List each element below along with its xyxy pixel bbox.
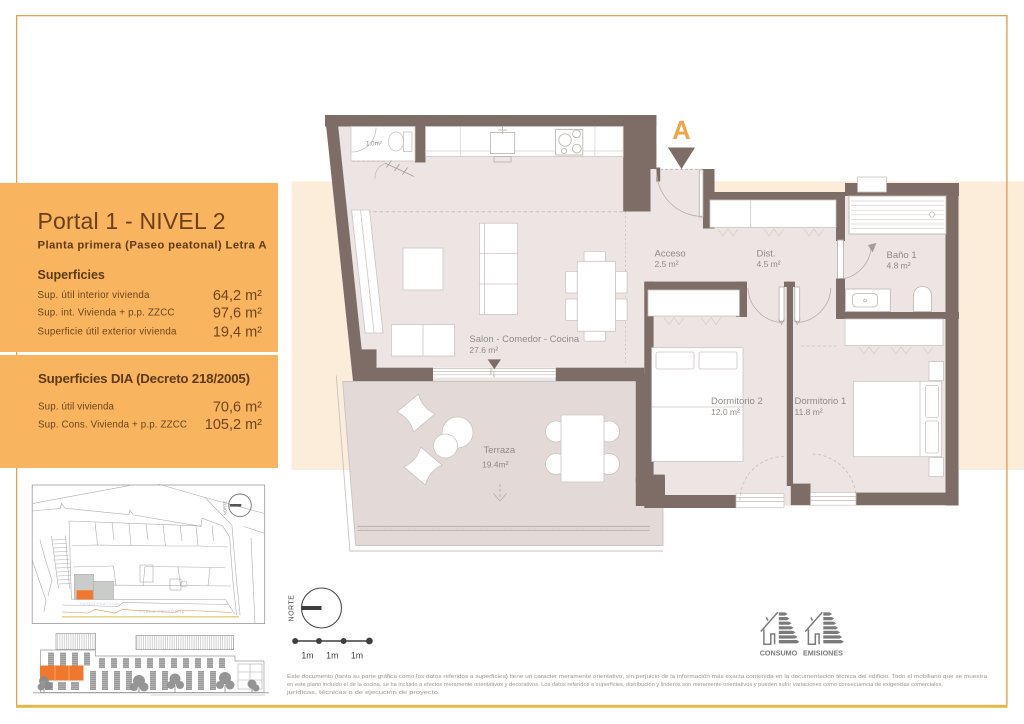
- svg-text:Acceso: Acceso: [655, 249, 686, 260]
- svg-text:Este documento (tanto su parte: Este documento (tanto su parte gráfica c…: [287, 674, 987, 680]
- svg-text:PASEO PEATONAL: PASEO PEATONAL: [80, 601, 122, 606]
- svg-text:1.0m²: 1.0m²: [366, 141, 382, 148]
- svg-text:Dormitorio 2: Dormitorio 2: [711, 396, 763, 407]
- svg-text:1m: 1m: [301, 651, 313, 661]
- svg-text:Salon - Comedor - Cocina: Salon - Comedor - Cocina: [469, 334, 580, 345]
- svg-text:Terraza: Terraza: [484, 445, 516, 456]
- svg-text:jurídicas, técnicas o de ejecu: jurídicas, técnicas o de ejecución de pr…: [286, 690, 440, 696]
- svg-text:4.8 m²: 4.8 m²: [887, 261, 911, 271]
- svg-text:Superficies DIA (Decreto 218/2: Superficies DIA (Decreto 218/2005): [38, 371, 250, 386]
- svg-text:11.8 m²: 11.8 m²: [795, 407, 823, 417]
- svg-text:105,2 m²: 105,2 m²: [205, 417, 262, 433]
- svg-text:Sup. int. Vivienda + p.p. ZZCC: Sup. int. Vivienda + p.p. ZZCC: [38, 308, 175, 319]
- svg-text:Baño 1: Baño 1: [887, 250, 917, 261]
- svg-text:12.0 m²: 12.0 m²: [711, 407, 740, 417]
- svg-text:Portal 1 - NIVEL 2: Portal 1 - NIVEL 2: [38, 208, 226, 234]
- svg-text:A: A: [672, 117, 690, 145]
- svg-text:Superficie útil exterior vivie: Superficie útil exterior vivienda: [38, 327, 178, 338]
- svg-text:2.5 m²: 2.5 m²: [655, 259, 679, 269]
- svg-text:Sup. útil vivienda: Sup. útil vivienda: [38, 402, 115, 413]
- svg-text:1m: 1m: [326, 651, 338, 661]
- svg-text:64,2 m²: 64,2 m²: [213, 288, 262, 304]
- svg-text:en este plano incluido el de l: en este plano incluido el de la cocina, …: [287, 682, 944, 688]
- svg-text:Dormitorio 1: Dormitorio 1: [795, 396, 847, 407]
- svg-text:Planta primera (Paseo peatonal: Planta primera (Paseo peatonal) Letra A: [38, 240, 267, 252]
- svg-text:19.4m²: 19.4m²: [482, 460, 509, 470]
- svg-text:Sup. útil interior vivienda: Sup. útil interior vivienda: [38, 290, 151, 301]
- svg-text:NORTE: NORTE: [289, 595, 296, 622]
- svg-text:CONSUMO: CONSUMO: [760, 649, 798, 658]
- svg-text:Sup. Cons. Vivienda + p.p. ZZC: Sup. Cons. Vivienda + p.p. ZZCC: [38, 420, 187, 431]
- svg-text:Dist.: Dist.: [757, 249, 776, 260]
- svg-text:NORTE: NORTE: [223, 501, 228, 516]
- svg-text:PASEO PEATONAL: PASEO PEATONAL: [139, 609, 185, 614]
- svg-text:19,4 m²: 19,4 m²: [213, 325, 262, 341]
- svg-text:97,6 m²: 97,6 m²: [213, 306, 262, 322]
- svg-text:4.5 m²: 4.5 m²: [757, 259, 781, 269]
- svg-text:Superficies: Superficies: [38, 268, 105, 282]
- svg-text:70,6 m²: 70,6 m²: [213, 400, 262, 416]
- svg-text:27.6 m²: 27.6 m²: [469, 345, 498, 355]
- svg-text:1m: 1m: [351, 651, 363, 661]
- svg-text:EMISIONES: EMISIONES: [803, 649, 843, 658]
